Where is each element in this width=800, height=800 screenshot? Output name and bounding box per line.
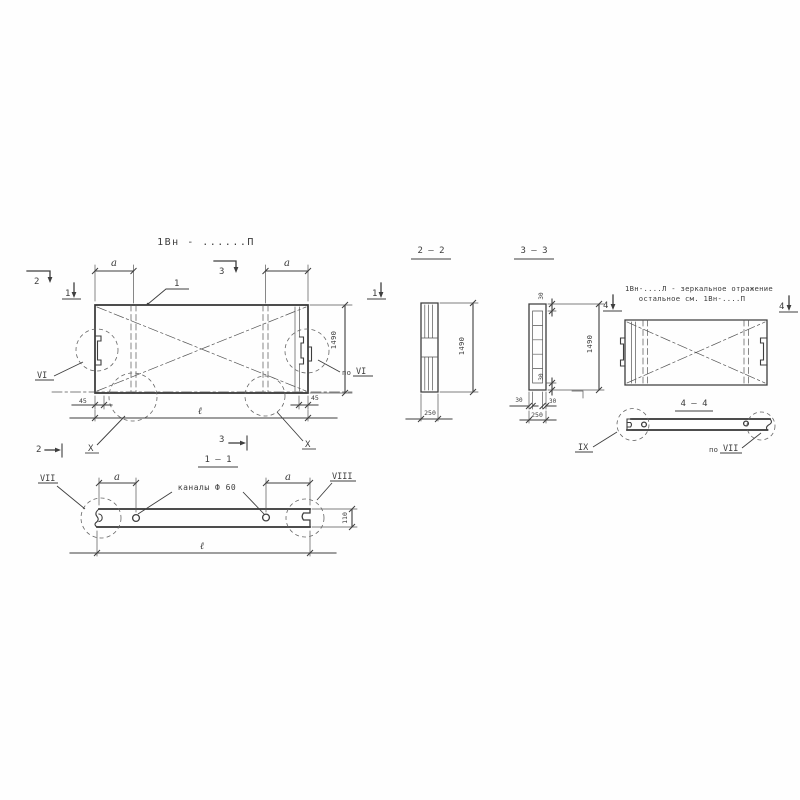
- svg-text:1: 1: [372, 289, 377, 299]
- detail-circle-ix: [617, 409, 649, 441]
- dim-110: 110: [341, 512, 349, 524]
- section-marker-1-left: 1: [62, 283, 81, 299]
- svg-text:4: 4: [779, 302, 784, 312]
- channels-leaders: [138, 492, 264, 514]
- detail-circle-viii: [286, 499, 324, 537]
- dimension-ticks: [526, 301, 602, 423]
- dimension-ticks: [92, 268, 348, 421]
- dim-250: 250: [531, 411, 543, 419]
- svg-text:VI: VI: [37, 371, 47, 381]
- panel-left-inner-lines: [632, 322, 636, 383]
- dim-a-right: a: [285, 472, 291, 483]
- detail-circle-x-right: [245, 376, 285, 416]
- section-4-4-view: 4 — 4 IX по VII: [572, 391, 775, 454]
- section-3-3-title: 3 — 3: [520, 246, 547, 256]
- svg-text:по: по: [342, 368, 351, 377]
- bar-left-bite: [99, 514, 102, 522]
- dim-250: 250: [424, 409, 436, 417]
- bar-left-end: [627, 419, 631, 430]
- dim-1490: 1490: [457, 337, 466, 356]
- dimension-lines: [406, 303, 473, 419]
- bar-left-break: [95, 509, 99, 527]
- section-marker-3-bottom: 3: [219, 435, 247, 450]
- channel-hole-right: [744, 421, 749, 426]
- svg-text:VIII: VIII: [332, 472, 352, 482]
- svg-text:VI: VI: [356, 367, 366, 377]
- detail-label-viii: VIII: [317, 472, 356, 500]
- section-4-4-title: 4 — 4: [680, 399, 707, 409]
- extension-lines: [421, 303, 478, 421]
- section-marker-2-top: 2: [27, 271, 52, 287]
- svg-text:X: X: [88, 444, 94, 454]
- bar-right-groove: [302, 509, 310, 527]
- panel-hidden-lines: [131, 305, 268, 393]
- item-callout-1: 1: [147, 279, 189, 305]
- section-marker-1-right: 1: [367, 283, 386, 299]
- panel-right-inner-lines: [295, 307, 300, 391]
- dim-45-right: 45: [311, 394, 319, 402]
- dimension-ticks: [418, 300, 476, 422]
- svg-text:3: 3: [219, 267, 224, 277]
- dim-a-left: a: [111, 258, 117, 269]
- stray-mark: [572, 391, 583, 398]
- dim-30-bottom-left: 30: [515, 397, 523, 404]
- svg-text:по: по: [709, 445, 718, 454]
- section-marker-2-bottom: 2: [36, 444, 62, 457]
- svg-text:4: 4: [603, 301, 608, 311]
- section-cells: [533, 311, 543, 383]
- section-outline: [421, 303, 438, 392]
- section-1-1-view: 1 — 1 каналы Ф 60 a a 110 ℓ VII VIII: [38, 455, 357, 556]
- section-inner-lines: [421, 305, 438, 390]
- detail-circle-po-vi: [285, 329, 329, 373]
- plan-view: 1Вн - ......П a a 1490 45 45 ℓ 2 1: [27, 237, 386, 457]
- section-1-1-title: 1 — 1: [204, 455, 231, 465]
- dim-45-left: 45: [79, 397, 87, 405]
- detail-label-po-vii: по VII: [709, 433, 761, 454]
- svg-text:1: 1: [65, 289, 70, 299]
- dim-30-top: 30: [538, 292, 545, 300]
- bar-right-break: [766, 419, 771, 430]
- svg-text:IX: IX: [578, 443, 589, 453]
- detail-label-ix: IX: [575, 432, 617, 453]
- mirror-note-line1: 1Вн-....Л - зеркальное отражение: [625, 284, 773, 293]
- section-2-2-title: 2 — 2: [417, 246, 444, 256]
- dim-a-right: a: [284, 258, 290, 269]
- bar-edges: [97, 509, 310, 527]
- svg-text:2: 2: [34, 277, 39, 287]
- svg-text:3: 3: [219, 435, 224, 445]
- section-marker-4-right: 4: [779, 296, 798, 312]
- channel-hole-left: [133, 515, 140, 522]
- section-marker-4-left: 4: [603, 295, 622, 311]
- channels-label: каналы Ф 60: [178, 483, 236, 492]
- section-3-3-view: 3 — 3 30 1490 30 30 30 250: [510, 246, 604, 423]
- detail-circle-vii: [81, 498, 121, 538]
- panel-left-notch: [621, 338, 626, 366]
- bar-left-bite: [627, 423, 632, 428]
- dim-30-bottom-right: 30: [538, 373, 545, 381]
- technical-drawing-canvas: 1Вн - ......П a a 1490 45 45 ℓ 2 1: [0, 0, 800, 800]
- dim-length: ℓ: [200, 541, 204, 552]
- dim-length: ℓ: [198, 406, 202, 417]
- plan-title: 1Вн - ......П: [157, 237, 255, 248]
- section-2-2-view: 2 — 2 1490 250: [406, 246, 478, 422]
- dimension-lines: [70, 271, 345, 418]
- section-marker-3-top: 3: [214, 261, 238, 277]
- panel-right-notch: [761, 338, 768, 365]
- drawing-sheet: 1Вн - ......П a a 1490 45 45 ℓ 2 1: [0, 0, 800, 800]
- detail-circle-x-left: [109, 373, 157, 421]
- svg-text:1: 1: [174, 279, 179, 289]
- mirror-view: 1Вн-....Л - зеркальное отражение остальн…: [603, 284, 798, 385]
- panel-left-notch: [95, 336, 101, 365]
- channel-hole-left: [642, 422, 647, 427]
- dim-30-bottom-right2: 30: [549, 398, 557, 405]
- extension-lines: [529, 304, 604, 423]
- dim-1490: 1490: [585, 335, 594, 354]
- detail-label-vi: VI: [35, 362, 83, 381]
- mirror-note-line2: остальное см. 1Вн-....П: [639, 294, 745, 303]
- dim-1490: 1490: [329, 331, 338, 350]
- svg-text:X: X: [305, 440, 311, 450]
- detail-circle-po-vii: [747, 412, 775, 440]
- svg-text:VII: VII: [40, 474, 55, 484]
- channel-hole-right: [263, 514, 270, 521]
- panel-right-notch: [300, 337, 304, 364]
- dim-a-left: a: [114, 472, 120, 483]
- detail-label-x-left: X: [85, 416, 125, 454]
- detail-label-vii: VII: [38, 474, 85, 509]
- svg-text:VII: VII: [723, 444, 738, 454]
- svg-text:2: 2: [36, 445, 41, 455]
